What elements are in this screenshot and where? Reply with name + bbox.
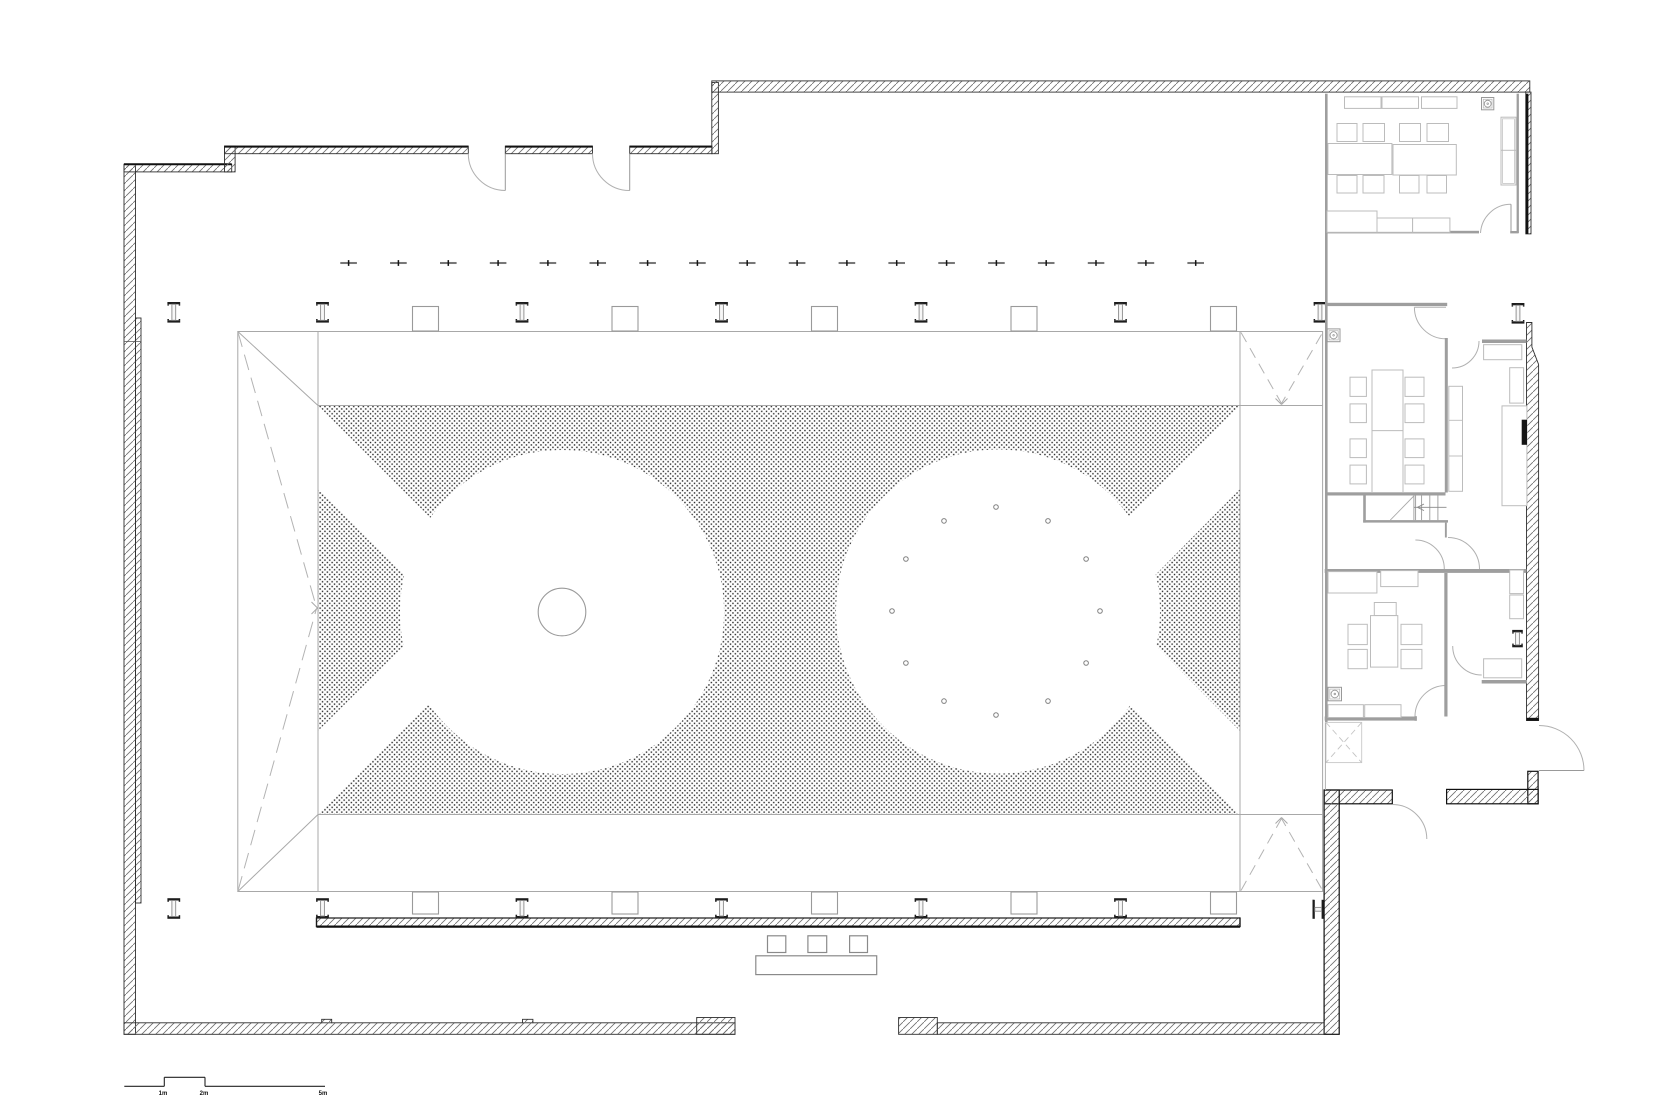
svg-text:1m: 1m <box>159 1091 168 1097</box>
svg-text:5m: 5m <box>319 1091 328 1097</box>
svg-text:2m: 2m <box>200 1091 209 1097</box>
